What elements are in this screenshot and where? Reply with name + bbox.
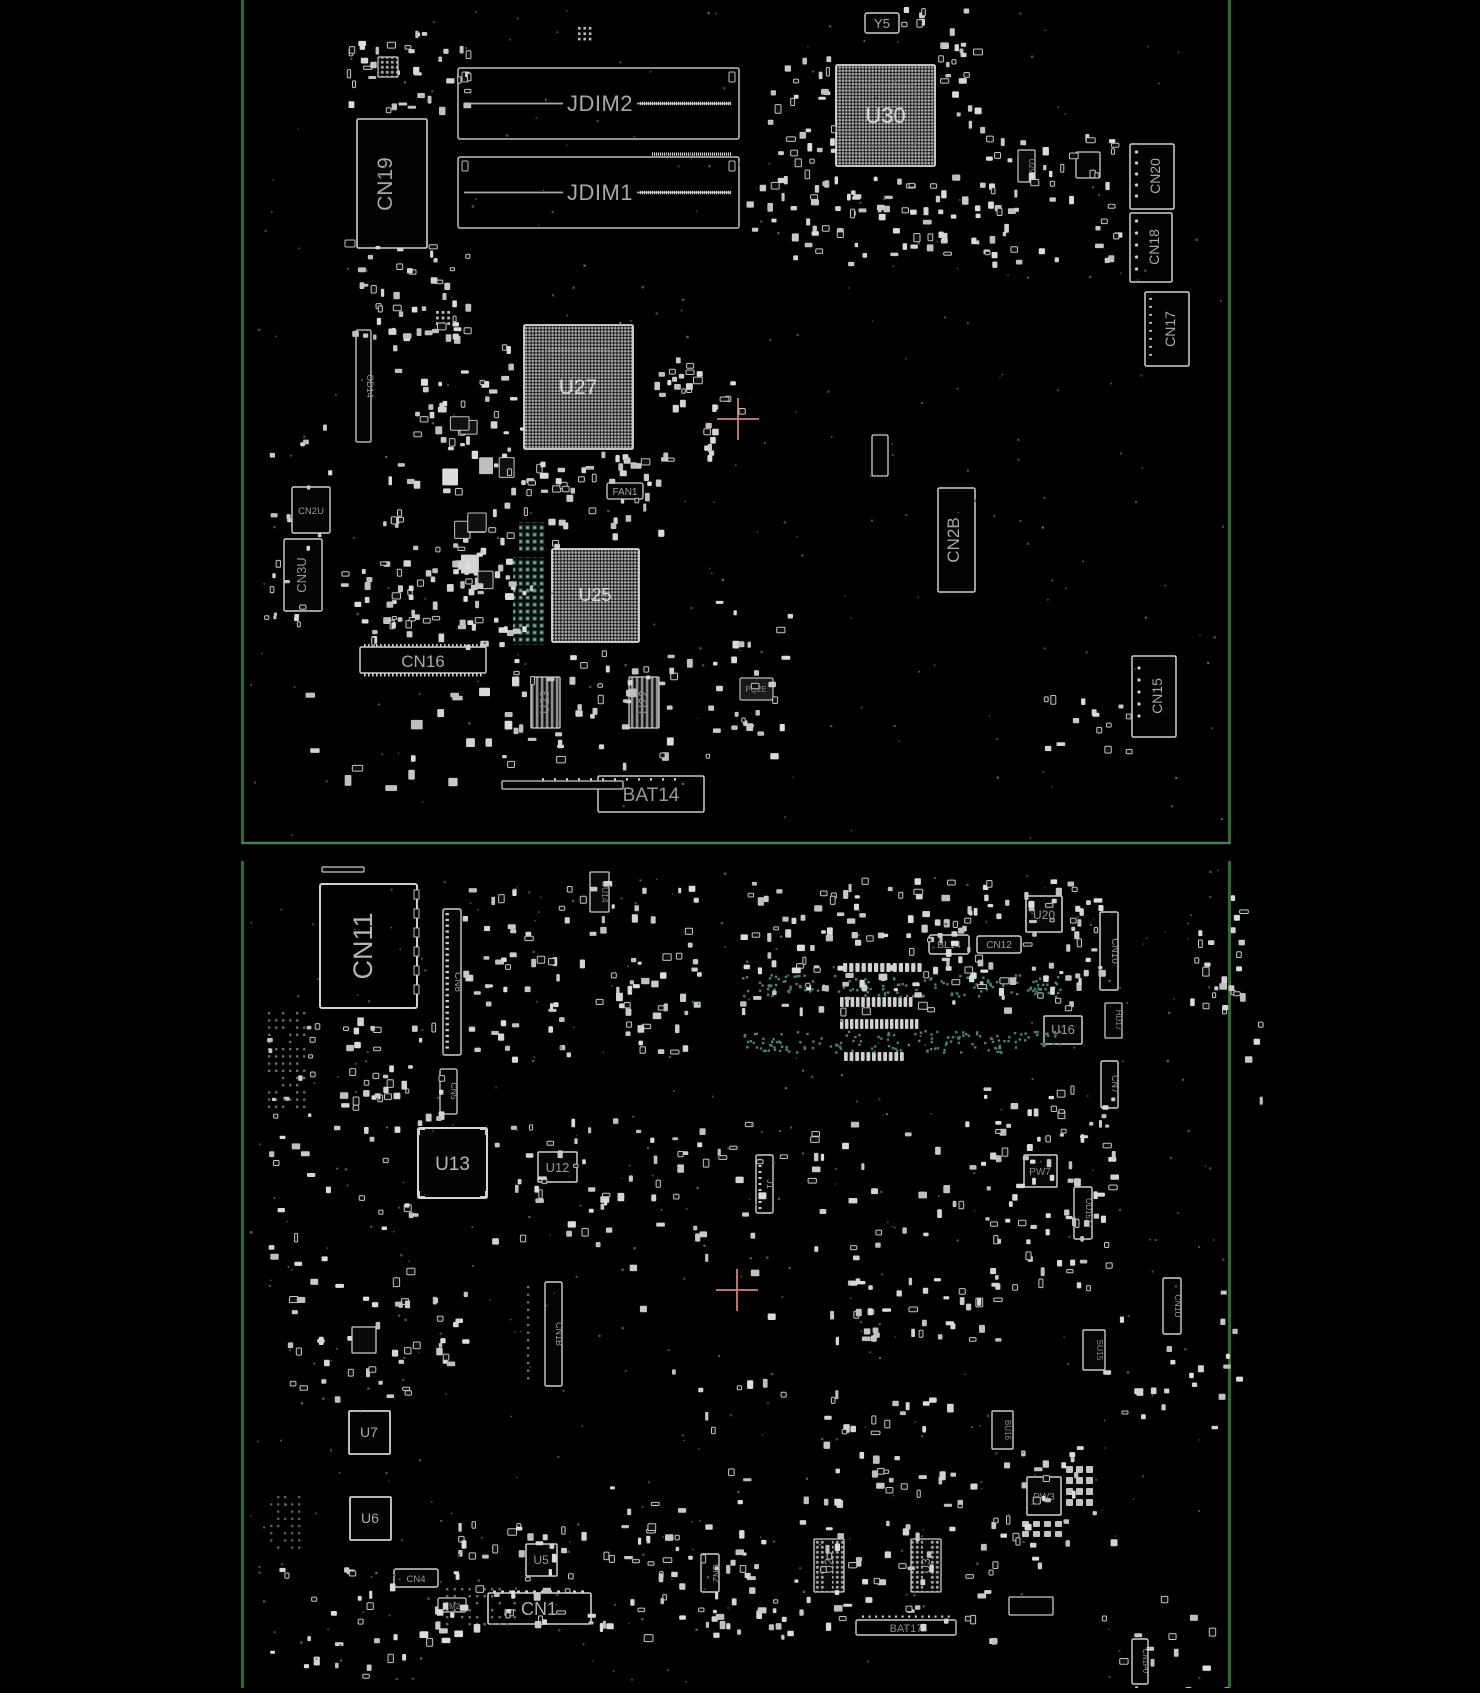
svg-text:U12: U12 — [546, 1160, 570, 1175]
svg-text:BU16: BU16 — [1003, 1420, 1012, 1441]
svg-text:CN2B: CN2B — [944, 517, 963, 562]
svg-text:BAT14: BAT14 — [623, 785, 680, 806]
svg-text:CN7: CN7 — [1110, 1075, 1120, 1093]
svg-text:JDIM2: JDIM2 — [567, 91, 633, 116]
svg-text:CN3U: CN3U — [294, 557, 309, 592]
svg-text:JDIM1: JDIM1 — [567, 180, 633, 205]
svg-text:CN8: CN8 — [452, 972, 463, 992]
svg-text:U30: U30 — [865, 103, 905, 128]
svg-text:FAN1: FAN1 — [612, 487, 637, 498]
svg-text:U25: U25 — [578, 585, 611, 605]
svg-text:U23: U23 — [537, 690, 552, 714]
svg-text:J1: J1 — [765, 1179, 775, 1189]
svg-text:U27: U27 — [559, 376, 598, 399]
svg-text:CN11: CN11 — [348, 912, 378, 979]
svg-text:CN1B: CN1B — [554, 1322, 564, 1346]
svg-text:U7: U7 — [360, 1424, 378, 1440]
svg-text:CN1U: CN1U — [1173, 1294, 1183, 1317]
svg-text:CN19: CN19 — [374, 157, 397, 211]
svg-text:OD14: OD14 — [365, 374, 375, 398]
svg-text:PW7: PW7 — [1029, 1167, 1051, 1178]
svg-text:CN17: CN17 — [1162, 311, 1178, 347]
svg-text:U22: U22 — [636, 690, 651, 714]
svg-text:CN20: CN20 — [1147, 158, 1163, 194]
svg-text:CN5: CN5 — [449, 1082, 459, 1099]
svg-text:CN18: CN18 — [1146, 229, 1162, 265]
svg-text:U13: U13 — [435, 1154, 470, 1175]
svg-text:CN16: CN16 — [401, 652, 444, 671]
svg-text:SU15: SU15 — [1095, 1339, 1105, 1361]
svg-text:CN10: CN10 — [1109, 938, 1120, 964]
svg-text:CN15: CN15 — [1149, 678, 1165, 714]
svg-text:U6: U6 — [361, 1510, 379, 1526]
svg-text:CN12: CN12 — [986, 940, 1012, 951]
svg-text:U29: U29 — [1027, 159, 1036, 174]
svg-text:U5: U5 — [533, 1553, 549, 1567]
svg-text:HD17: HD17 — [1114, 1010, 1123, 1031]
svg-text:CN4: CN4 — [406, 1574, 425, 1585]
svg-text:CN2U: CN2U — [298, 506, 324, 517]
svg-text:Y5: Y5 — [874, 16, 890, 31]
svg-text:CN1P0: CN1P0 — [1141, 1649, 1150, 1673]
